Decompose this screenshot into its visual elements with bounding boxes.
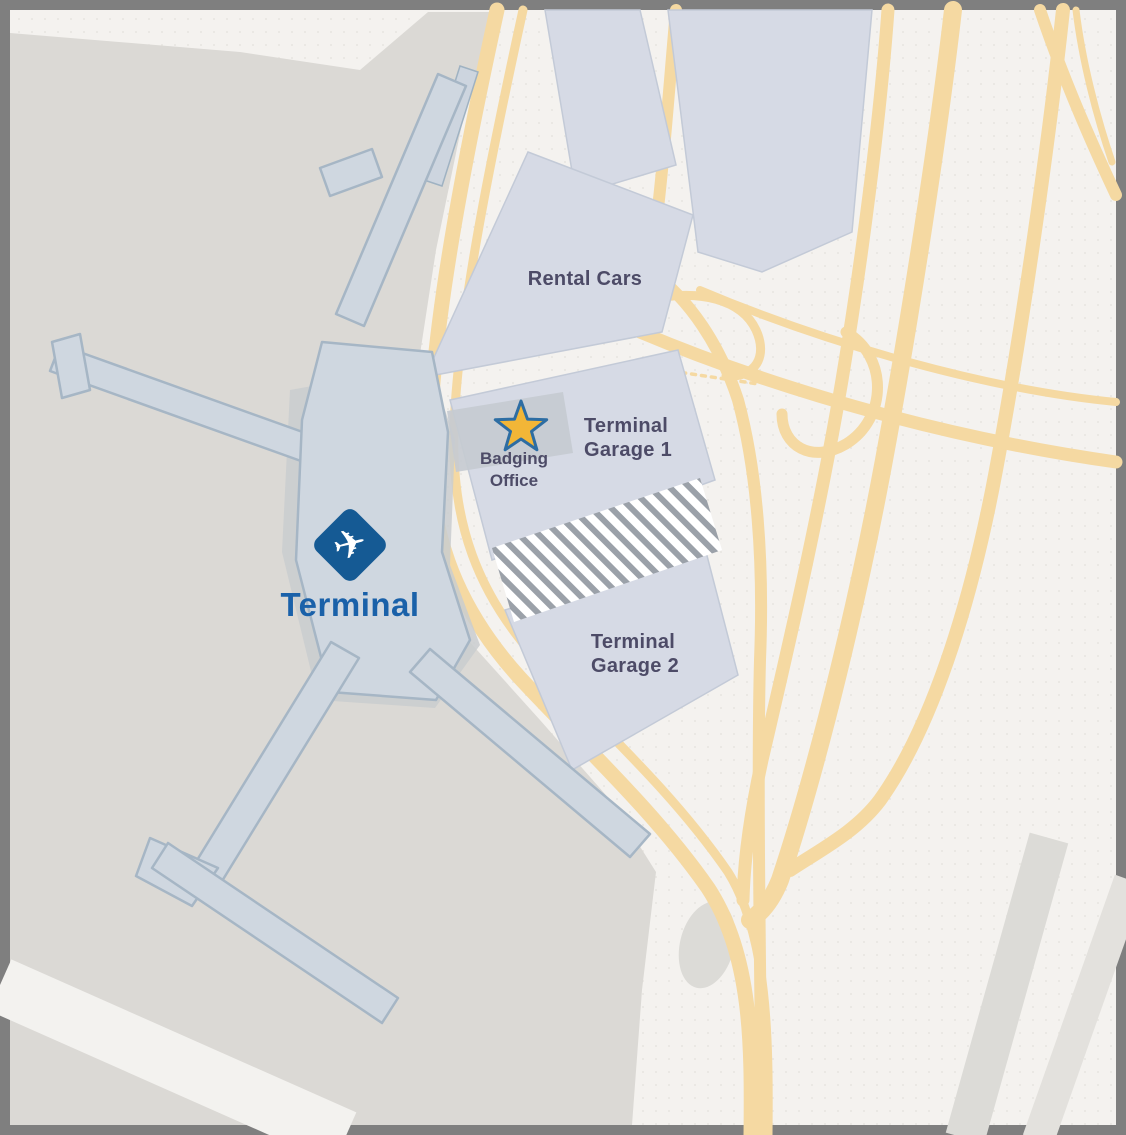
building-top-right — [668, 10, 872, 272]
rental-cars-label: Rental Cars — [528, 268, 642, 290]
garage1-label-line1: Terminal — [584, 415, 668, 437]
badging-office-label-line2: Office — [490, 471, 538, 490]
garage2-label-line1: Terminal — [591, 631, 675, 653]
badging-office-label-line1: Badging — [480, 449, 548, 468]
garage2-label-line2: Garage 2 — [591, 655, 679, 677]
terminal-label: Terminal — [280, 586, 419, 623]
garage1-label-line2: Garage 1 — [584, 439, 672, 461]
airport-map: ✈ Rental Cars Terminal Garage 1 Terminal… — [0, 0, 1126, 1135]
map-canvas: ✈ Rental Cars Terminal Garage 1 Terminal… — [0, 0, 1126, 1135]
